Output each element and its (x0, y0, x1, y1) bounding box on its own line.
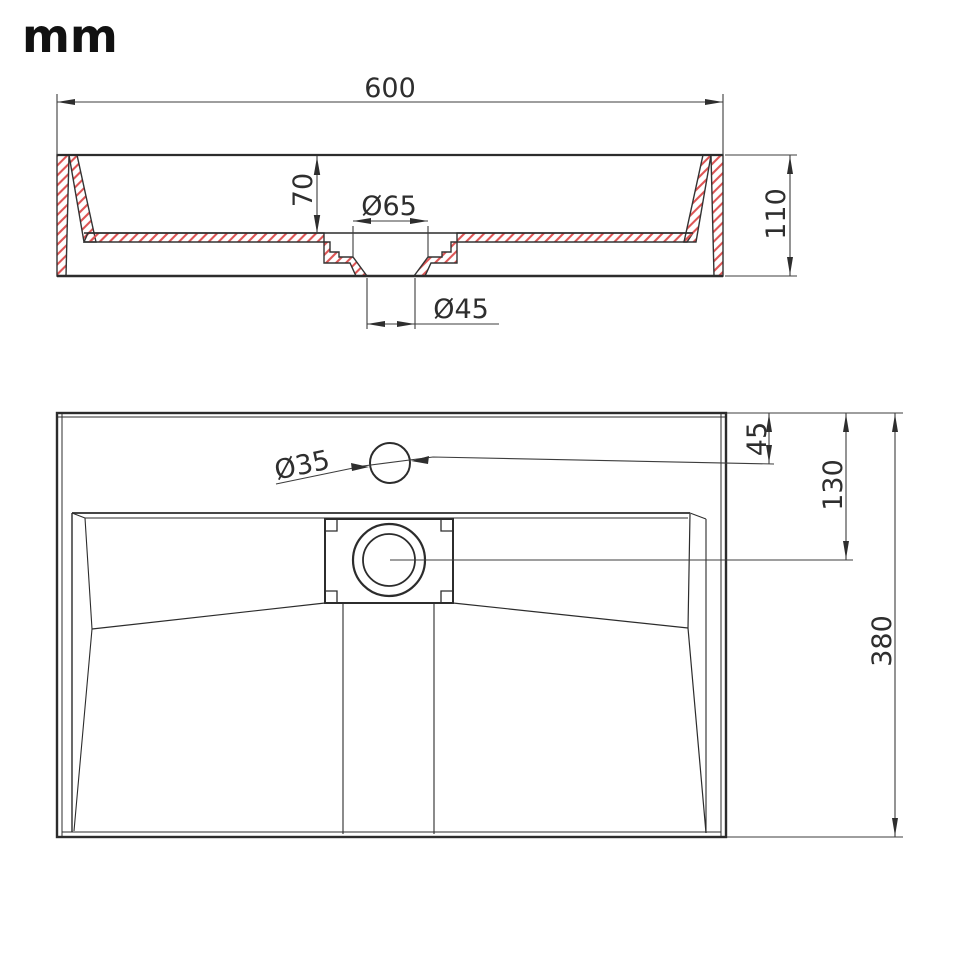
dim-45-text: 45 (742, 422, 773, 456)
dim-130-text: 130 (818, 459, 849, 511)
plan-inner-offset-lines (57, 413, 726, 837)
unit-label: mm (22, 9, 118, 63)
section-view: 600 70 Ø65 110 (57, 73, 797, 329)
dim-600-arrow-right (705, 99, 723, 105)
dim-380-arrow-top (892, 414, 898, 432)
basin-floor-right (457, 233, 693, 242)
basin-left-fold-line (74, 518, 92, 831)
dim-faucet-hole-diameter: Ø35 (272, 445, 774, 487)
plan-outer-rect (57, 413, 726, 837)
dim-70-text: 70 (288, 173, 319, 207)
right-wall-outer-band (711, 155, 723, 276)
dim-70-arrow-top (314, 157, 320, 175)
dim-130-arrow-top (843, 414, 849, 432)
dim-45o-text: Ø45 (433, 294, 489, 325)
dim-basin-depth: 70 (288, 156, 320, 234)
dim-380-text: 380 (867, 615, 898, 667)
dim-45o-arrow-right (397, 321, 415, 327)
dim-70-arrow-bottom (314, 215, 320, 233)
dim-600-text: 600 (364, 73, 416, 104)
dim-130-arrow-bottom (843, 541, 849, 559)
basin-floor-edge-left (92, 603, 325, 629)
plan-view: Ø35 45 130 380 (57, 413, 903, 837)
technical-drawing-page: mm 600 70 (0, 0, 960, 960)
dim-600-arrow-left (57, 99, 75, 105)
basin-floor-edge-right (453, 603, 688, 628)
dim-overall-depth: 380 (867, 413, 898, 837)
dim-drain-outlet-diameter: Ø45 (367, 278, 499, 329)
dim-110-text: 110 (761, 188, 792, 240)
dim-drain-offset: 130 (818, 413, 849, 560)
drain-channel-lines (343, 603, 434, 834)
dim-65-text: Ø65 (361, 191, 417, 222)
left-wall-outer-band (57, 155, 69, 276)
dim-110-arrow-top (787, 156, 793, 174)
drain-flange-rect (325, 519, 453, 603)
dim-35-arrow-left (351, 463, 369, 471)
basin-floor-left (84, 233, 324, 242)
dim-overall-height: 110 (725, 155, 797, 276)
right-wall-inner-band (684, 155, 711, 242)
dim-35-leader-line (276, 457, 774, 484)
sink-dimension-drawing: mm 600 70 (0, 0, 960, 960)
dim-drain-top-diameter: Ø65 (353, 191, 428, 258)
dim-faucet-offset: 45 (742, 413, 773, 464)
basin-right-fold-line (688, 514, 706, 833)
dim-overall-width: 600 (57, 73, 723, 155)
dim-45o-arrow-left (367, 321, 385, 327)
drain-pocket-right (414, 242, 457, 276)
dim-110-arrow-bottom (787, 257, 793, 275)
dim-35-text: Ø35 (272, 445, 333, 487)
dim-65-extension-lines (353, 226, 428, 258)
left-wall-inner-band (69, 155, 96, 242)
dim-380-arrow-bottom (892, 818, 898, 836)
drain-pocket-left (324, 242, 367, 276)
drain-flange-corner-notches (325, 519, 453, 603)
dim-45o-extension-lines (367, 278, 415, 329)
